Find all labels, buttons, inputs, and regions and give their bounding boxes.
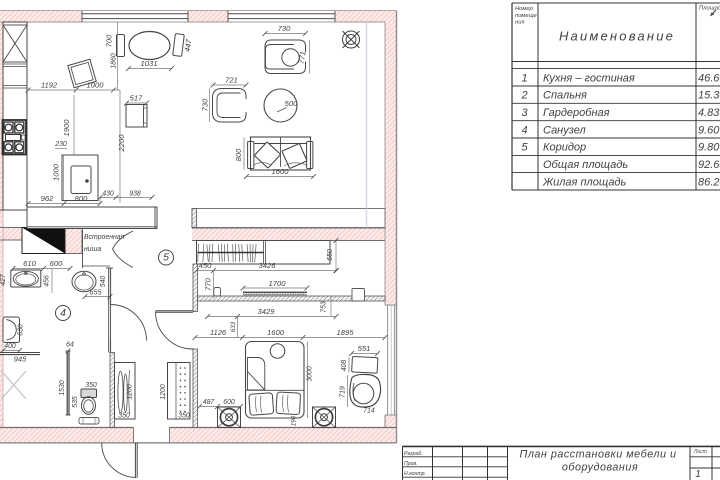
svg-text:610: 610 — [23, 259, 36, 268]
svg-text:1700: 1700 — [269, 279, 287, 288]
svg-text:400: 400 — [4, 343, 16, 350]
svg-text:Лист: Лист — [693, 449, 707, 455]
svg-text:1600: 1600 — [272, 167, 290, 176]
svg-text:551: 551 — [358, 344, 371, 353]
svg-text:оборудования: оборудования — [562, 462, 638, 474]
svg-text:633: 633 — [230, 321, 237, 332]
svg-text:350: 350 — [178, 413, 190, 420]
svg-text:3426: 3426 — [259, 261, 277, 270]
svg-text:ниша: ниша — [84, 246, 101, 253]
svg-text:650: 650 — [327, 249, 334, 261]
svg-text:430: 430 — [102, 191, 114, 198]
svg-text:4: 4 — [60, 307, 66, 319]
svg-text:3000: 3000 — [307, 366, 314, 381]
svg-text:450: 450 — [199, 261, 212, 270]
svg-text:730: 730 — [201, 98, 210, 111]
svg-text:Кухня – гостиная: Кухня – гостиная — [543, 72, 635, 84]
svg-text:1192: 1192 — [41, 81, 58, 90]
svg-text:помеще: помеще — [515, 13, 538, 19]
svg-text:600: 600 — [223, 399, 235, 406]
svg-text:План расстановки мебели и: План расстановки мебели и — [520, 449, 677, 461]
svg-text:456: 456 — [44, 275, 51, 287]
svg-text:2: 2 — [520, 90, 527, 102]
svg-text:1200: 1200 — [127, 384, 134, 399]
svg-text:1000: 1000 — [52, 163, 61, 181]
svg-text:700: 700 — [105, 34, 114, 47]
svg-text:500: 500 — [285, 99, 298, 108]
svg-text:ния: ния — [515, 20, 525, 26]
svg-text:350: 350 — [85, 382, 97, 389]
svg-text:1895: 1895 — [337, 328, 355, 337]
svg-text:655: 655 — [90, 288, 103, 297]
svg-text:427: 427 — [0, 273, 7, 286]
svg-text:1860: 1860 — [111, 53, 118, 68]
svg-text:630: 630 — [18, 324, 25, 336]
svg-text:Гардеробная: Гардеробная — [543, 107, 610, 119]
svg-text:Санузел: Санузел — [543, 124, 586, 136]
svg-text:350: 350 — [118, 413, 130, 420]
svg-text:487: 487 — [203, 399, 216, 406]
svg-text:230: 230 — [54, 141, 67, 148]
svg-text:3: 3 — [521, 107, 528, 119]
svg-text:721: 721 — [225, 76, 238, 85]
svg-text:15.30: 15.30 — [698, 90, 720, 102]
svg-text:408: 408 — [341, 360, 348, 372]
svg-text:9.60: 9.60 — [698, 124, 720, 136]
svg-text:Разраб.: Разраб. — [404, 451, 423, 457]
svg-text:5: 5 — [521, 142, 528, 154]
svg-text:Спальня: Спальня — [543, 90, 587, 102]
svg-text:447: 447 — [183, 38, 194, 53]
svg-text:938: 938 — [129, 191, 141, 198]
svg-text:Жилая площадь: Жилая площадь — [542, 176, 627, 188]
svg-text:714: 714 — [363, 408, 375, 415]
svg-text:517: 517 — [130, 94, 143, 103]
svg-text:9.80: 9.80 — [698, 142, 720, 154]
svg-text:1126: 1126 — [210, 328, 227, 337]
svg-text:800: 800 — [234, 148, 243, 161]
svg-text:1600: 1600 — [267, 328, 285, 337]
svg-text:92.60: 92.60 — [698, 159, 720, 171]
svg-text:3429: 3429 — [258, 307, 276, 316]
svg-text:Общая площадь: Общая площадь — [543, 159, 628, 171]
svg-text:Коридор: Коридор — [543, 142, 586, 154]
svg-text:190: 190 — [291, 415, 298, 426]
svg-text:Площадь,: Площадь, — [699, 6, 720, 12]
svg-text:Наименование: Наименование — [559, 29, 675, 44]
svg-text:2200: 2200 — [117, 134, 126, 153]
svg-text:730: 730 — [278, 24, 291, 33]
svg-text:945: 945 — [14, 355, 27, 364]
svg-text:770: 770 — [204, 277, 213, 290]
svg-text:4: 4 — [521, 124, 527, 136]
svg-text:1: 1 — [521, 72, 527, 84]
svg-text:Номер: Номер — [515, 6, 534, 12]
svg-text:800: 800 — [75, 194, 88, 203]
svg-text:1530: 1530 — [59, 380, 66, 395]
svg-text:719: 719 — [340, 386, 347, 398]
svg-text:1000: 1000 — [87, 81, 105, 90]
svg-text:Пров.: Пров. — [404, 461, 418, 467]
svg-text:1200: 1200 — [160, 384, 167, 399]
svg-text:Встроенная: Встроенная — [84, 234, 125, 241]
svg-text:1900: 1900 — [62, 119, 71, 137]
svg-text:540: 540 — [100, 276, 107, 288]
svg-text:86.20: 86.20 — [698, 176, 720, 188]
svg-text:753: 753 — [321, 301, 328, 313]
svg-text:46.60: 46.60 — [698, 72, 720, 84]
svg-text:5: 5 — [163, 252, 169, 264]
svg-text:1031: 1031 — [141, 59, 158, 68]
svg-text:4.83: 4.83 — [698, 107, 720, 119]
svg-text:64: 64 — [66, 342, 74, 349]
svg-text:962: 962 — [41, 194, 54, 203]
svg-text:600: 600 — [50, 259, 63, 268]
svg-text:1: 1 — [695, 469, 701, 480]
svg-text:535: 535 — [72, 396, 79, 408]
svg-text:Н.контр.: Н.контр. — [404, 471, 426, 477]
